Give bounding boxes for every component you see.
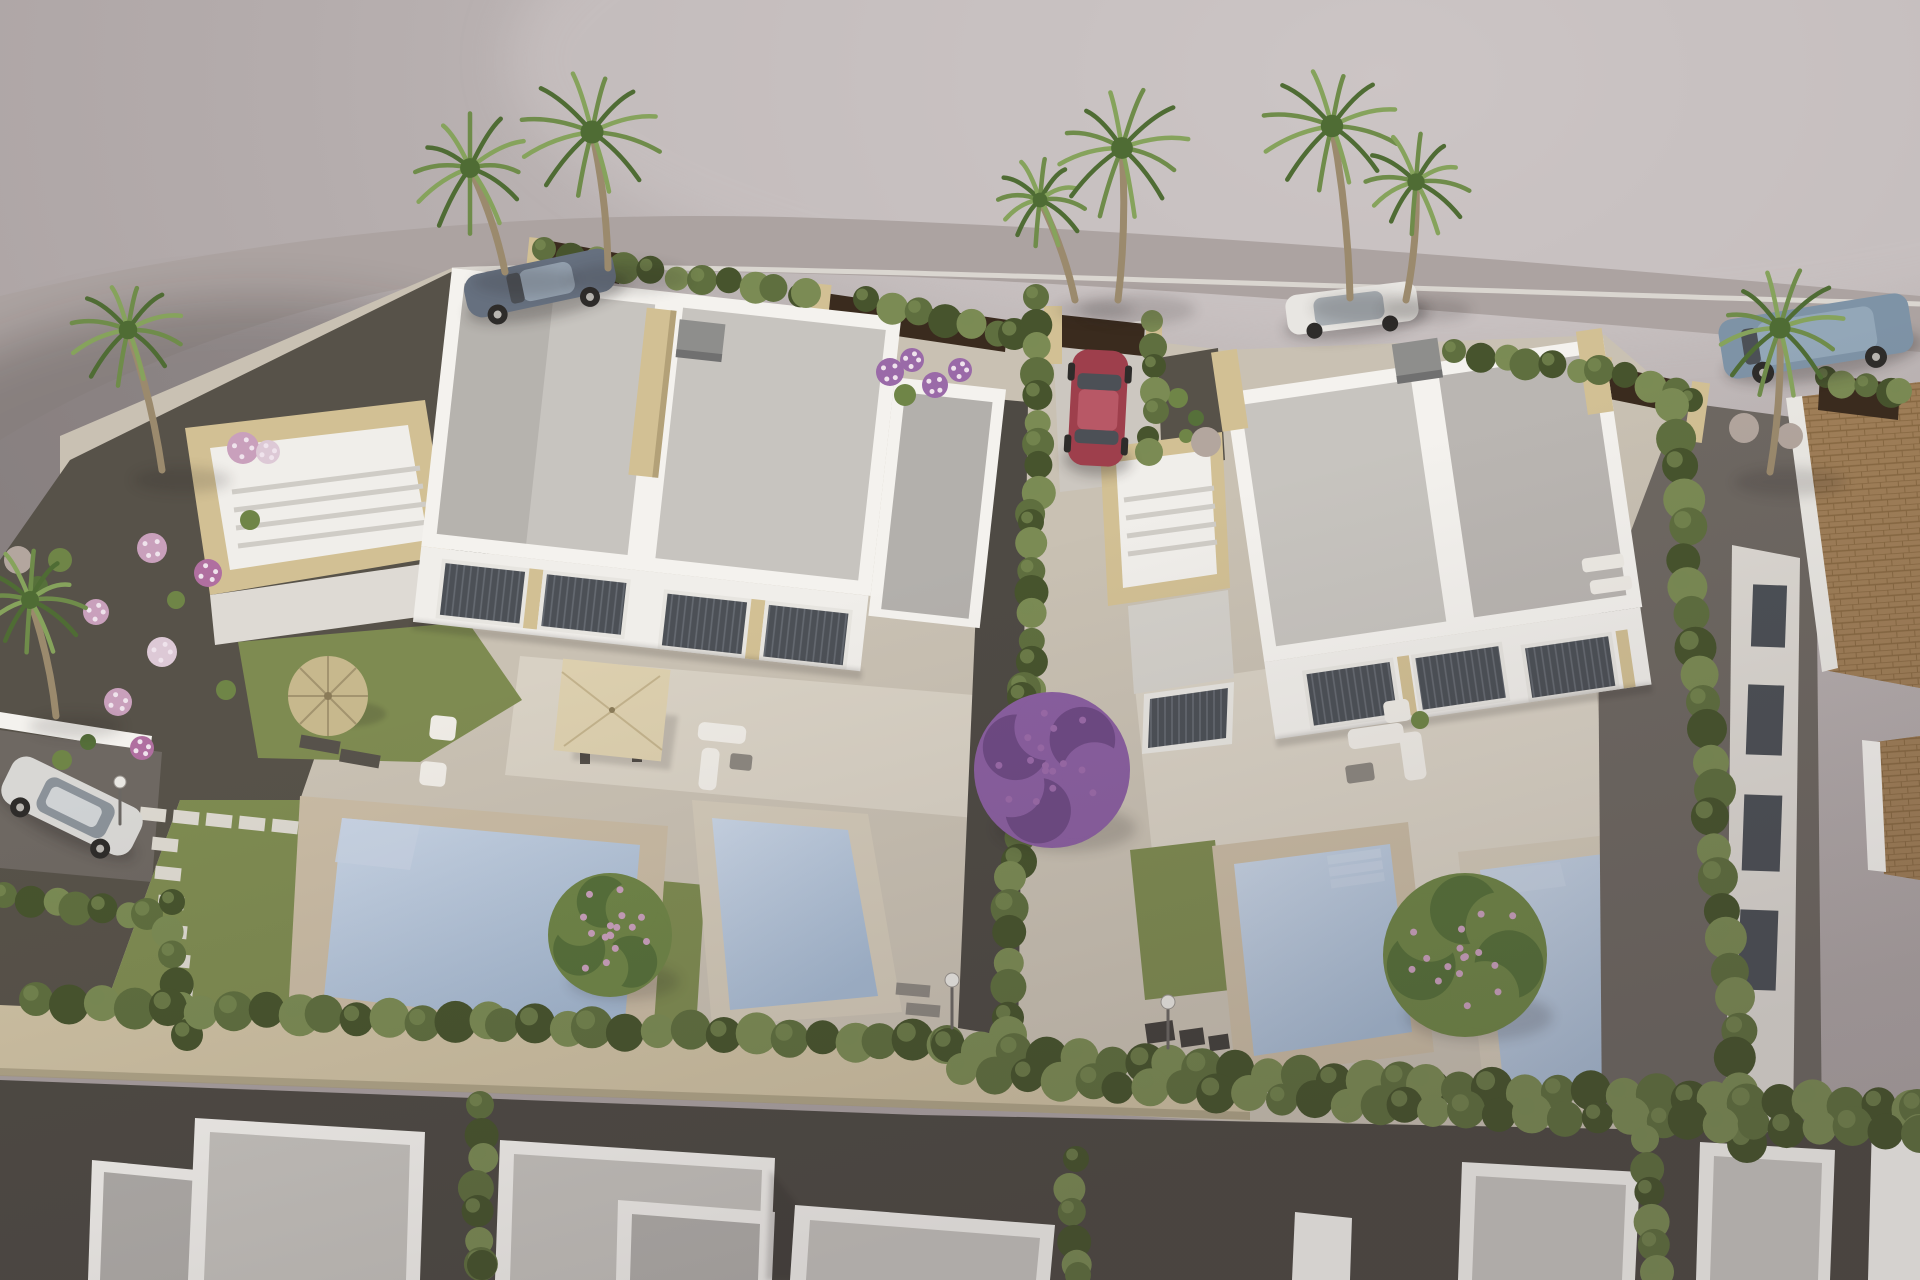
- vignette: [0, 0, 1920, 1280]
- render-viewport: Aerial 3D architectural rendering of a n…: [0, 0, 1920, 1280]
- aerial-render: Aerial 3D architectural rendering of a n…: [0, 0, 1920, 1280]
